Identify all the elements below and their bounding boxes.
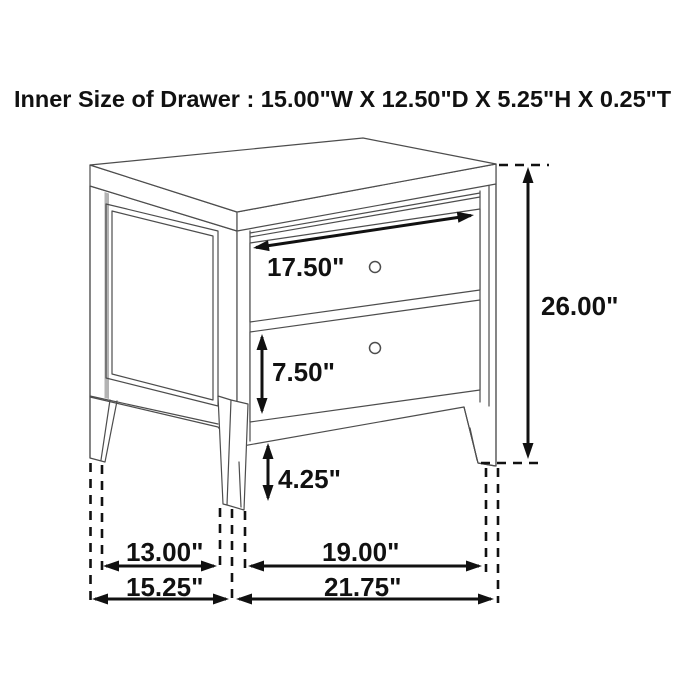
label-drawer-width: 17.50" [267, 252, 344, 282]
front-left-leg [218, 396, 248, 510]
dimension-diagram: Inner Size of Drawer : 15.00"W X 12.50"D… [0, 0, 700, 700]
dimension-overall-width: 21.75" [236, 572, 494, 605]
label-overall-height: 26.00" [541, 291, 618, 321]
label-side-inner-span: 13.00" [126, 537, 203, 567]
label-overall-depth: 15.25" [126, 572, 203, 602]
label-front-inner-span: 19.00" [322, 537, 399, 567]
drawer-2-knob[interactable] [370, 343, 381, 354]
dimension-overall-depth: 15.25" [92, 572, 229, 605]
back-left-leg [90, 397, 117, 462]
side-stile-shadow [105, 192, 110, 399]
dimension-overall-height: 26.00" [523, 167, 619, 459]
label-overall-width: 21.75" [324, 572, 401, 602]
label-drawer2-height: 7.50" [272, 357, 335, 387]
drawer-1-knob[interactable] [370, 262, 381, 273]
dimension-side-inner-span: 13.00" [103, 537, 217, 572]
label-bottom-clearance: 4.25" [278, 464, 341, 494]
nightstand-drawing [90, 138, 496, 510]
dimension-front-inner-span: 19.00" [248, 537, 482, 572]
dimension-bottom-clearance: 4.25" [263, 443, 341, 501]
nightstand-diagram-svg: 17.50" 7.50" 4.25" 26.00" [0, 0, 700, 700]
